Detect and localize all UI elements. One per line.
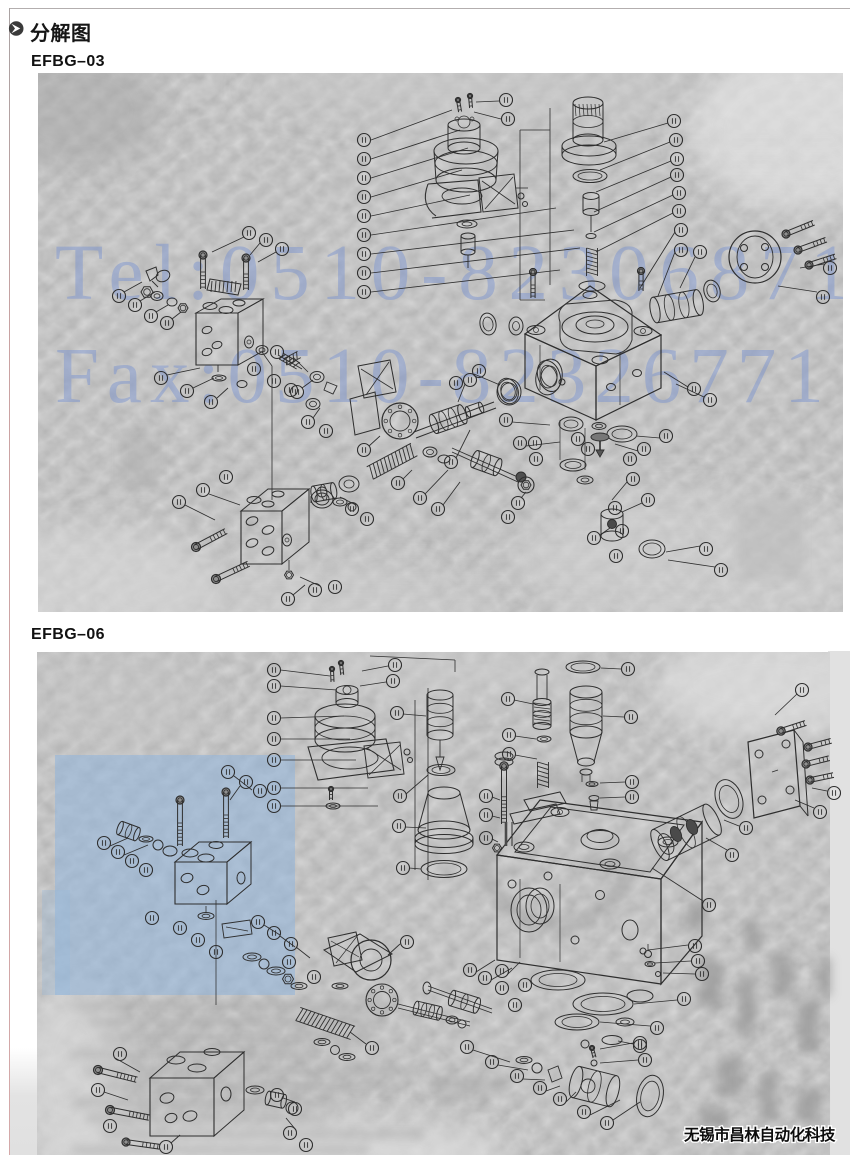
svg-text:Fax:0510-82326771: Fax:0510-82326771 xyxy=(55,333,832,420)
svg-text:Tel:0510-82306871: Tel:0510-82306871 xyxy=(55,230,843,317)
svg-text:无锡市昌林自动化科技: 无锡市昌林自动化科技 xyxy=(683,1125,836,1144)
